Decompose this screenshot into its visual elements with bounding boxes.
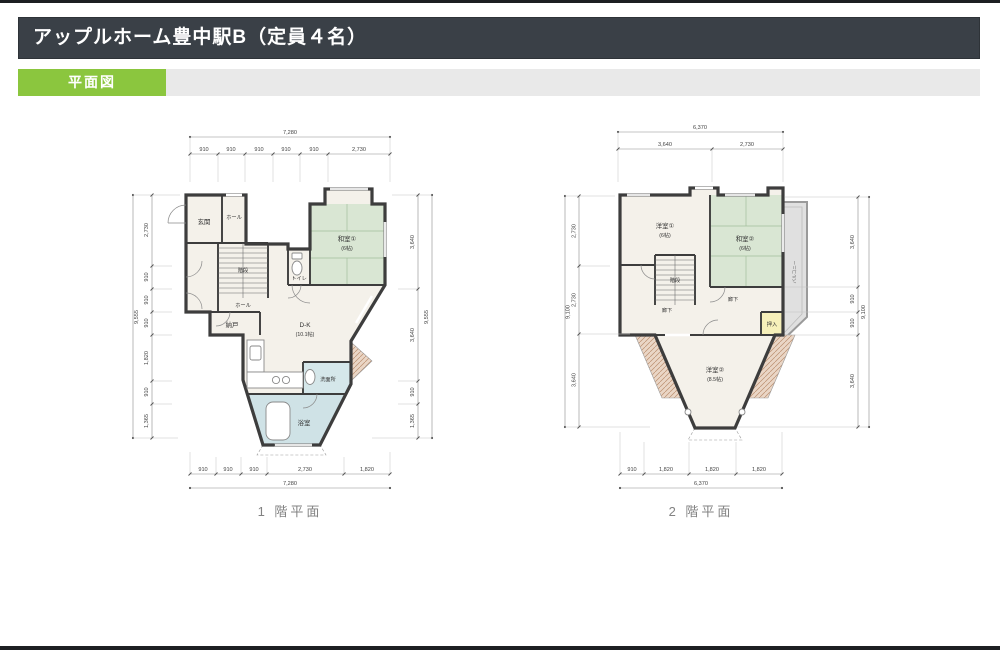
- dim-f2-top-1: 2,730: [740, 142, 754, 148]
- dim-f1-left-1: 910: [144, 272, 150, 281]
- page: { "header": { "title": "アップルホーム豊中駅B（定員４名…: [0, 0, 1000, 650]
- label-yoshitsu2: 洋室②: [706, 365, 725, 374]
- dim-f1-bottom-4: 1,820: [360, 467, 374, 473]
- label-oshiire: 押入: [767, 320, 777, 328]
- label-corridor2: 廊下: [662, 306, 672, 314]
- dim-f1-top-3: 910: [281, 147, 290, 153]
- toilet-tank-icon: [292, 253, 302, 259]
- dim-f1-right-2: 910: [410, 387, 416, 396]
- label-yoshitsu1: 洋室①: [656, 221, 675, 230]
- dim-f1-top-0: 910: [199, 147, 208, 153]
- dim-f1-bottom-0: 910: [198, 467, 207, 473]
- floor2-dim-top: 6,370 3,640 2,730: [617, 125, 785, 182]
- dim-f1-right-3: 1,365: [410, 414, 416, 428]
- terrace-hatch: [352, 343, 372, 380]
- label-bath: 浴室: [298, 418, 311, 427]
- dim-f1-left-total: 9,555: [134, 310, 140, 324]
- dim-f1-top-4: 910: [309, 147, 318, 153]
- floor2-caption: 2 階平面: [669, 504, 734, 519]
- label-balcony: バルコニー: [792, 260, 797, 283]
- label-storage: 納戸: [226, 320, 239, 329]
- label-washroom: 洗面所: [320, 375, 336, 383]
- label-washitsu1: 和室①: [338, 234, 357, 243]
- dim-f2-bottom-total: 6,370: [694, 481, 708, 487]
- dim-f1-bottom-3: 2,730: [298, 467, 312, 473]
- dim-f2-top-total: 6,370: [693, 125, 707, 131]
- toilet-icon: [292, 261, 302, 275]
- dim-f1-left-6: 1,365: [144, 414, 150, 428]
- stove-burner-icon: [272, 376, 279, 383]
- label-stairs-f2: 階段: [670, 276, 680, 284]
- kitchen-sink-icon: [250, 346, 261, 360]
- tab-floor-plan[interactable]: 平面図: [18, 69, 166, 96]
- dim-f2-right-0: 3,640: [850, 235, 856, 249]
- dim-f1-right-total: 9,555: [424, 310, 430, 324]
- dim-f1-left-0: 2,730: [144, 223, 150, 237]
- label-washitsu1-size: (6帖): [341, 244, 353, 252]
- dim-f1-right-0: 3,640: [410, 235, 416, 249]
- dim-f2-bottom-1: 1,820: [659, 467, 673, 473]
- label-washitsu2: 和室②: [736, 234, 755, 243]
- dim-f2-right-3: 3,640: [850, 374, 856, 388]
- dim-f2-left-2: 3,640: [572, 373, 578, 387]
- eave-dashed: [688, 428, 742, 440]
- tab-strip: 平面図: [18, 69, 980, 96]
- title-bar: アップルホーム豊中駅B（定員４名）: [18, 17, 980, 59]
- label-dk: D-K: [299, 322, 311, 329]
- label-hall-upper: ホール: [226, 214, 242, 221]
- window-border-bottom: [0, 646, 1000, 650]
- label-corridor1: 廊下: [728, 295, 738, 303]
- page-title: アップルホーム豊中駅B（定員４名）: [19, 18, 979, 58]
- dim-f1-left-2: 910: [144, 295, 150, 304]
- floor2-dim-bottom: 910 1,820 1,820 1,820 6,370: [619, 432, 784, 489]
- floor1-dim-top: 7,280 910 910 910 910 910 2,730: [189, 130, 392, 182]
- dim-f1-top-5: 2,730: [352, 147, 366, 153]
- label-washitsu2-size: (6帖): [739, 244, 751, 252]
- dim-f2-top-0: 3,640: [658, 142, 672, 148]
- floor1-plan: 玄関 ホール 階段 ホール 納戸 トイレ 和室① (6帖) D-K (10.1帖…: [120, 122, 440, 527]
- dim-f2-bottom-0: 910: [627, 467, 636, 473]
- dim-f1-left-4: 1,820: [144, 351, 150, 365]
- slant-window-icon: [685, 409, 691, 415]
- dim-f2-left-0: 2,730: [572, 224, 578, 238]
- dim-f2-right-total: 9,100: [861, 305, 867, 319]
- dim-f2-left-1: 2,730: [572, 293, 578, 307]
- dim-f1-right-1: 3,640: [410, 328, 416, 342]
- label-yoshitsu2-size: (8.5帖): [707, 375, 723, 383]
- dim-f1-top-1: 910: [226, 147, 235, 153]
- floor1-dim-left: 9,555 2,730 910 910 910 1,820 910 1,365: [132, 194, 180, 440]
- bathtub-icon: [266, 402, 290, 440]
- floor2-rooms: [620, 188, 807, 440]
- label-toilet: トイレ: [291, 276, 307, 282]
- slant-window-icon: [739, 409, 745, 415]
- dim-f2-bottom-2: 1,820: [705, 467, 719, 473]
- label-hall-lower: ホール: [235, 302, 251, 309]
- dim-f2-bottom-3: 1,820: [752, 467, 766, 473]
- dim-f2-right-2: 910: [850, 318, 856, 327]
- dim-f1-bottom-total: 7,280: [283, 481, 297, 487]
- dim-f1-bottom-2: 910: [249, 467, 258, 473]
- stove-burner-icon: [282, 376, 289, 383]
- floor2-plan: 洋室① (6帖) 和室② (6帖) 階段 廊下 廊下 押入 バルコニー 洋室② …: [555, 122, 885, 527]
- sink-icon: [305, 370, 315, 385]
- dim-f2-right-1: 910: [850, 294, 856, 303]
- dim-f1-top-2: 910: [254, 147, 263, 153]
- dim-f1-left-5: 910: [144, 387, 150, 396]
- floor1-caption: 1 階平面: [258, 504, 323, 519]
- label-dk-size: (10.1帖): [296, 330, 315, 338]
- label-stairs: 階段: [238, 266, 248, 274]
- dim-f1-top-total: 7,280: [283, 130, 297, 136]
- window-border-top: [0, 0, 1000, 3]
- floor1-dim-bottom: 910 910 910 2,730 1,820 7,280: [189, 452, 392, 489]
- dim-f1-bottom-1: 910: [223, 467, 232, 473]
- label-yoshitsu1-size: (6帖): [659, 231, 671, 239]
- label-genkan: 玄関: [198, 217, 211, 226]
- room-washitsu1: [310, 204, 385, 285]
- dim-f1-left-3: 910: [144, 318, 150, 327]
